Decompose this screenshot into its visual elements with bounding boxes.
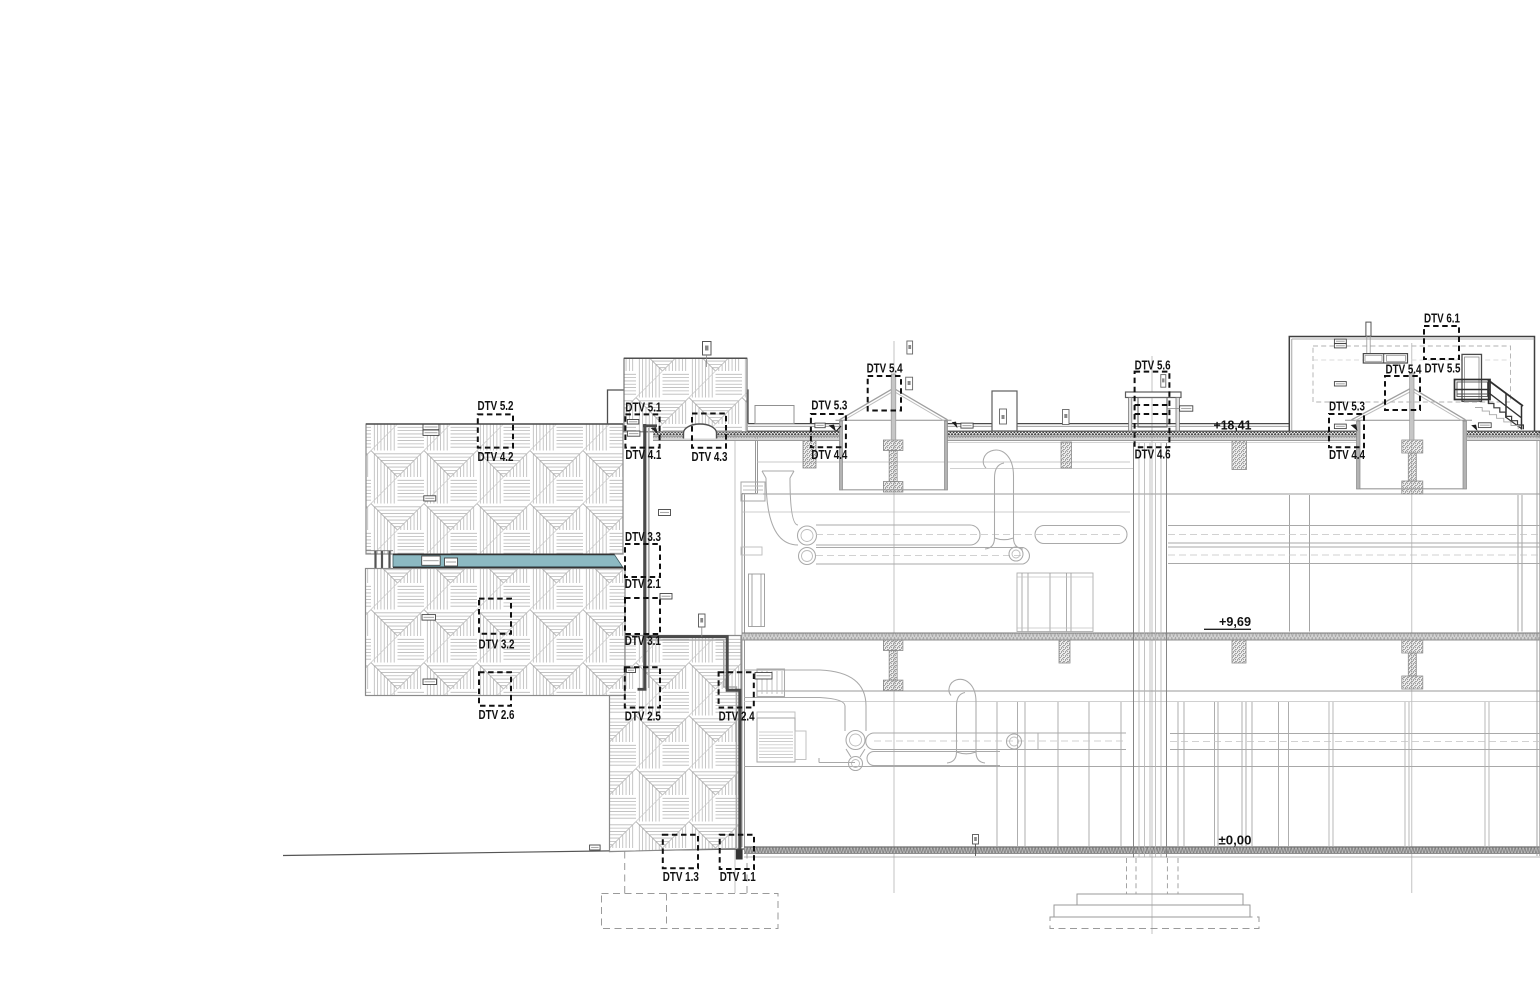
svg-text:DTV 4.4: DTV 4.4 (811, 447, 848, 462)
svg-text:DTV 5.4: DTV 5.4 (867, 361, 904, 376)
svg-text:DTV 2.1: DTV 2.1 (625, 576, 661, 591)
svg-text:DTV 2.6: DTV 2.6 (479, 707, 515, 722)
svg-text:±0,00: ±0,00 (1219, 834, 1252, 848)
svg-text:DTV 4.1: DTV 4.1 (625, 447, 661, 462)
svg-text:+9,69: +9,69 (1219, 615, 1251, 629)
svg-text:DTV 6.1: DTV 6.1 (1424, 311, 1460, 326)
svg-text:DTV 3.1: DTV 3.1 (625, 633, 661, 648)
svg-text:DTV 1.3: DTV 1.3 (663, 869, 699, 884)
svg-text:+18,41: +18,41 (1214, 419, 1252, 433)
svg-text:DTV 5.3: DTV 5.3 (811, 398, 847, 413)
svg-text:DTV 5.6: DTV 5.6 (1135, 358, 1171, 373)
svg-text:DTV 5.1: DTV 5.1 (625, 400, 661, 415)
svg-text:DTV 5.5: DTV 5.5 (1425, 361, 1461, 376)
svg-text:DTV 5.3: DTV 5.3 (1329, 399, 1365, 414)
svg-text:DTV 3.3: DTV 3.3 (625, 529, 661, 544)
svg-text:DTV 4.3: DTV 4.3 (692, 449, 728, 464)
svg-text:DTV 4.2: DTV 4.2 (478, 449, 514, 464)
svg-text:DTV 5.4: DTV 5.4 (1386, 362, 1423, 377)
svg-text:DTV 4.4: DTV 4.4 (1329, 447, 1366, 462)
svg-text:DTV 3.2: DTV 3.2 (479, 637, 515, 652)
svg-text:DTV 2.4: DTV 2.4 (719, 709, 756, 724)
svg-text:DTV 5.2: DTV 5.2 (478, 398, 514, 413)
svg-text:DTV 4.6: DTV 4.6 (1135, 447, 1171, 462)
svg-text:DTV 2.5: DTV 2.5 (625, 709, 661, 724)
svg-text:DTV 1.1: DTV 1.1 (720, 869, 756, 884)
